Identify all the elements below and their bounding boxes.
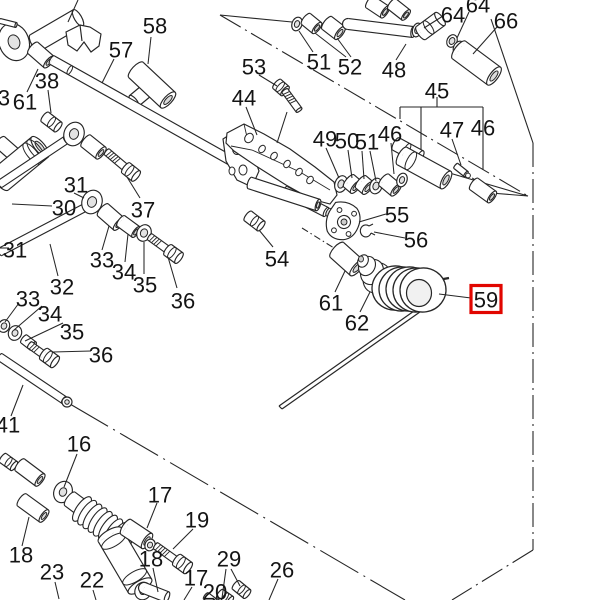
part-label-18: 18 [9,543,33,568]
part-56-clip [360,224,375,237]
part-label-37: 37 [131,198,155,223]
part-label-17: 17 [148,483,172,508]
part-label-33: 33 [90,248,114,273]
part-label-19: 19 [185,508,209,533]
part-label-41: 41 [0,413,20,438]
part-label-20: 20 [203,580,227,600]
part-label-36: 36 [171,289,195,314]
part-label-55: 55 [385,203,409,228]
part-64-band-a [364,0,391,19]
part-label-54: 54 [265,247,289,272]
part-label-57: 57 [109,38,133,63]
part-55-knuckle [322,198,365,244]
part-label-64: 64 [441,3,465,28]
part-label-46: 46 [471,116,495,141]
part-label-34: 34 [38,302,62,327]
part-label-46: 46 [378,122,402,147]
part-18-collar-a [15,492,50,523]
part-52-nut-a [300,12,324,35]
part-label-51: 51 [355,130,379,155]
part-66-damper [449,39,504,88]
part-53-bolt-shaft [281,88,302,113]
part-label-3: 3 [0,86,10,111]
part-64-band-b [386,0,412,22]
part-label-58: 58 [143,14,167,39]
part-label-32: 32 [50,275,74,300]
part-label-26: 26 [270,558,294,583]
part-label-61: 61 [13,90,37,115]
bushing-bottom-left [13,457,47,487]
exploded-parts-diagram: 5857386135344515248646466454746464950515… [0,0,600,600]
part-label-18: 18 [139,547,163,572]
part-label-31: 31 [3,238,27,263]
part-29-nut-a [231,579,252,599]
part-label-53: 53 [242,55,266,80]
part-label-66: 66 [494,9,518,34]
part-label-30: 30 [52,196,76,221]
part-label-51: 51 [307,50,331,75]
part-38-nut [40,111,64,133]
part-label-59[interactable]: 59 [474,288,498,313]
part-41-rod-end [62,397,72,407]
part-label-36: 36 [89,343,113,368]
part-label-48: 48 [382,58,406,83]
part-label-49: 49 [313,127,337,152]
part-46-collar-b [468,177,499,204]
part-label-64: 64 [466,0,490,18]
part-label-33: 33 [16,287,40,312]
part-54-nut [243,210,267,232]
part-label-47: 47 [440,118,464,143]
part-label-29: 29 [217,547,241,572]
part-label-62: 62 [345,311,369,336]
highlighted-callout-59[interactable]: 59 [471,286,501,313]
part-label-16: 16 [67,432,91,457]
part-52-nut-b [320,15,348,41]
part-label-56: 56 [404,228,428,253]
part-48-pipe [342,18,416,38]
part-label-45: 45 [425,79,449,104]
part-label-35: 35 [60,320,84,345]
rod-sliver [0,18,18,27]
part-label-31: 31 [64,173,88,198]
part-label-38: 38 [35,69,59,94]
part-label-23: 23 [40,560,64,585]
part-label-52: 52 [338,55,362,80]
part-label-22: 22 [80,568,104,593]
part-label-44: 44 [232,86,256,111]
parts-diagram-page: 5857386135344515248646466454746464950515… [0,0,600,600]
part-label-61: 61 [319,291,343,316]
part-label-35: 35 [133,273,157,298]
